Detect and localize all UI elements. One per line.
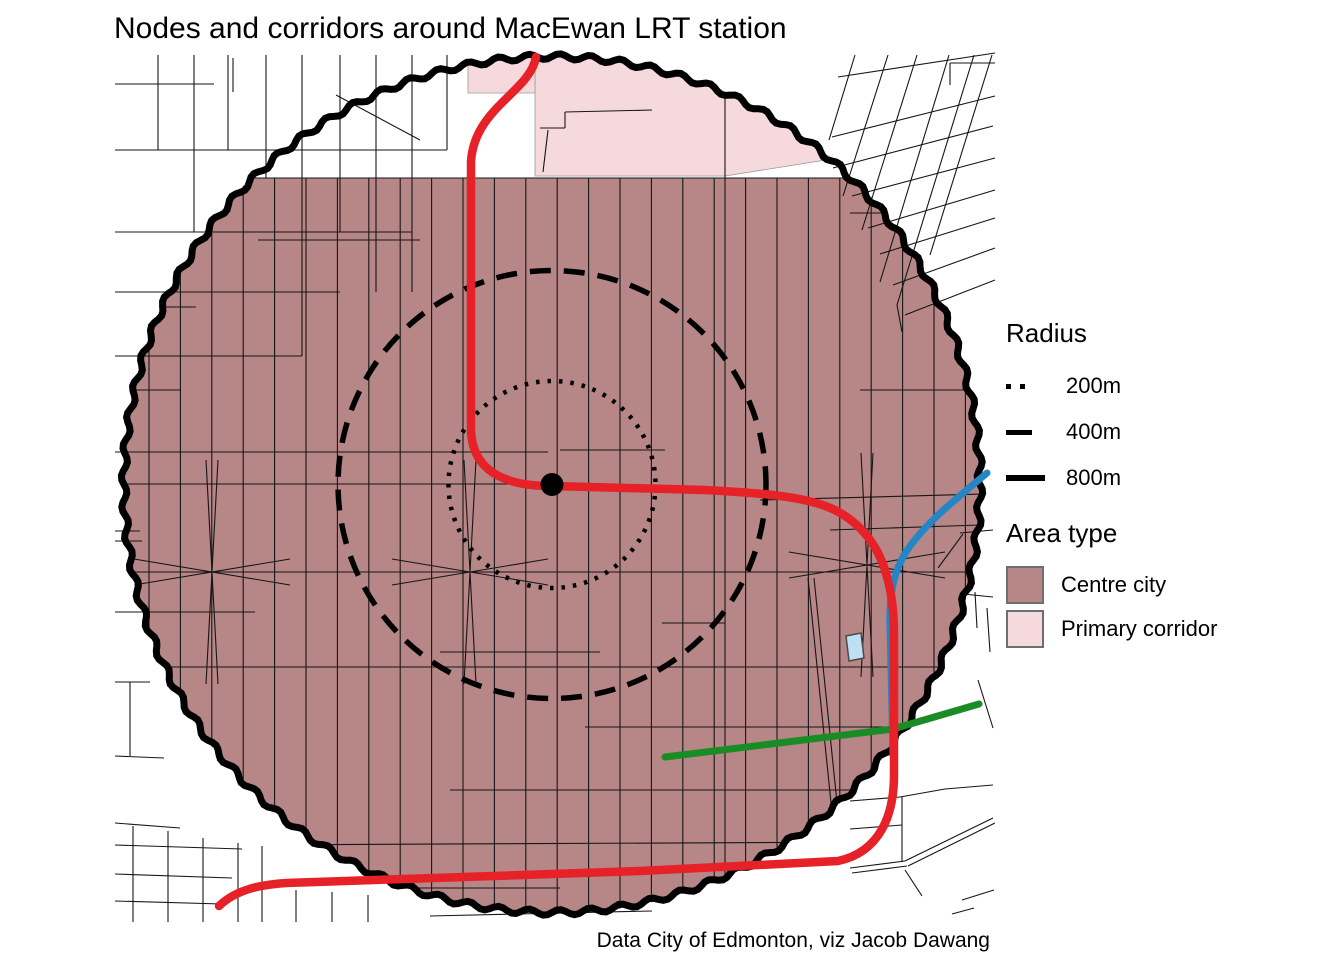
station-dot xyxy=(541,473,564,496)
legend-label: 200m xyxy=(1066,373,1121,399)
swatch-primary-corridor xyxy=(1006,610,1044,648)
legend-item-centre-city: Centre city xyxy=(1006,563,1336,607)
dashed-line-sample-icon xyxy=(1006,430,1058,435)
legend-item-400m: 400m xyxy=(1006,409,1336,455)
legend-label: 400m xyxy=(1066,419,1121,445)
legend-area-title: Area type xyxy=(1006,518,1336,549)
legend-area-type: Area type Centre city Primary corridor xyxy=(1006,518,1336,651)
legend-label: Centre city xyxy=(1061,572,1166,598)
page-title: Nodes and corridors around MacEwan LRT s… xyxy=(114,12,787,46)
legend-radius-title: Radius xyxy=(1006,318,1336,349)
dotted-line-sample-icon xyxy=(1006,384,1058,389)
legend-label: 800m xyxy=(1066,465,1121,491)
map-page: { "title": "Nodes and corridors around M… xyxy=(0,0,1344,960)
legend-item-primary-corridor: Primary corridor xyxy=(1006,607,1336,651)
legend-item-800m: 800m xyxy=(1006,455,1336,501)
legend-radius: Radius 200m 400m 800m xyxy=(1006,318,1336,501)
solid-line-sample-icon xyxy=(1006,475,1058,481)
legend-label: Primary corridor xyxy=(1061,616,1217,642)
swatch-centre-city xyxy=(1006,566,1044,604)
legend-item-200m: 200m xyxy=(1006,363,1336,409)
building-footprint xyxy=(846,633,864,661)
data-source-caption: Data City of Edmonton, viz Jacob Dawang xyxy=(597,929,990,953)
